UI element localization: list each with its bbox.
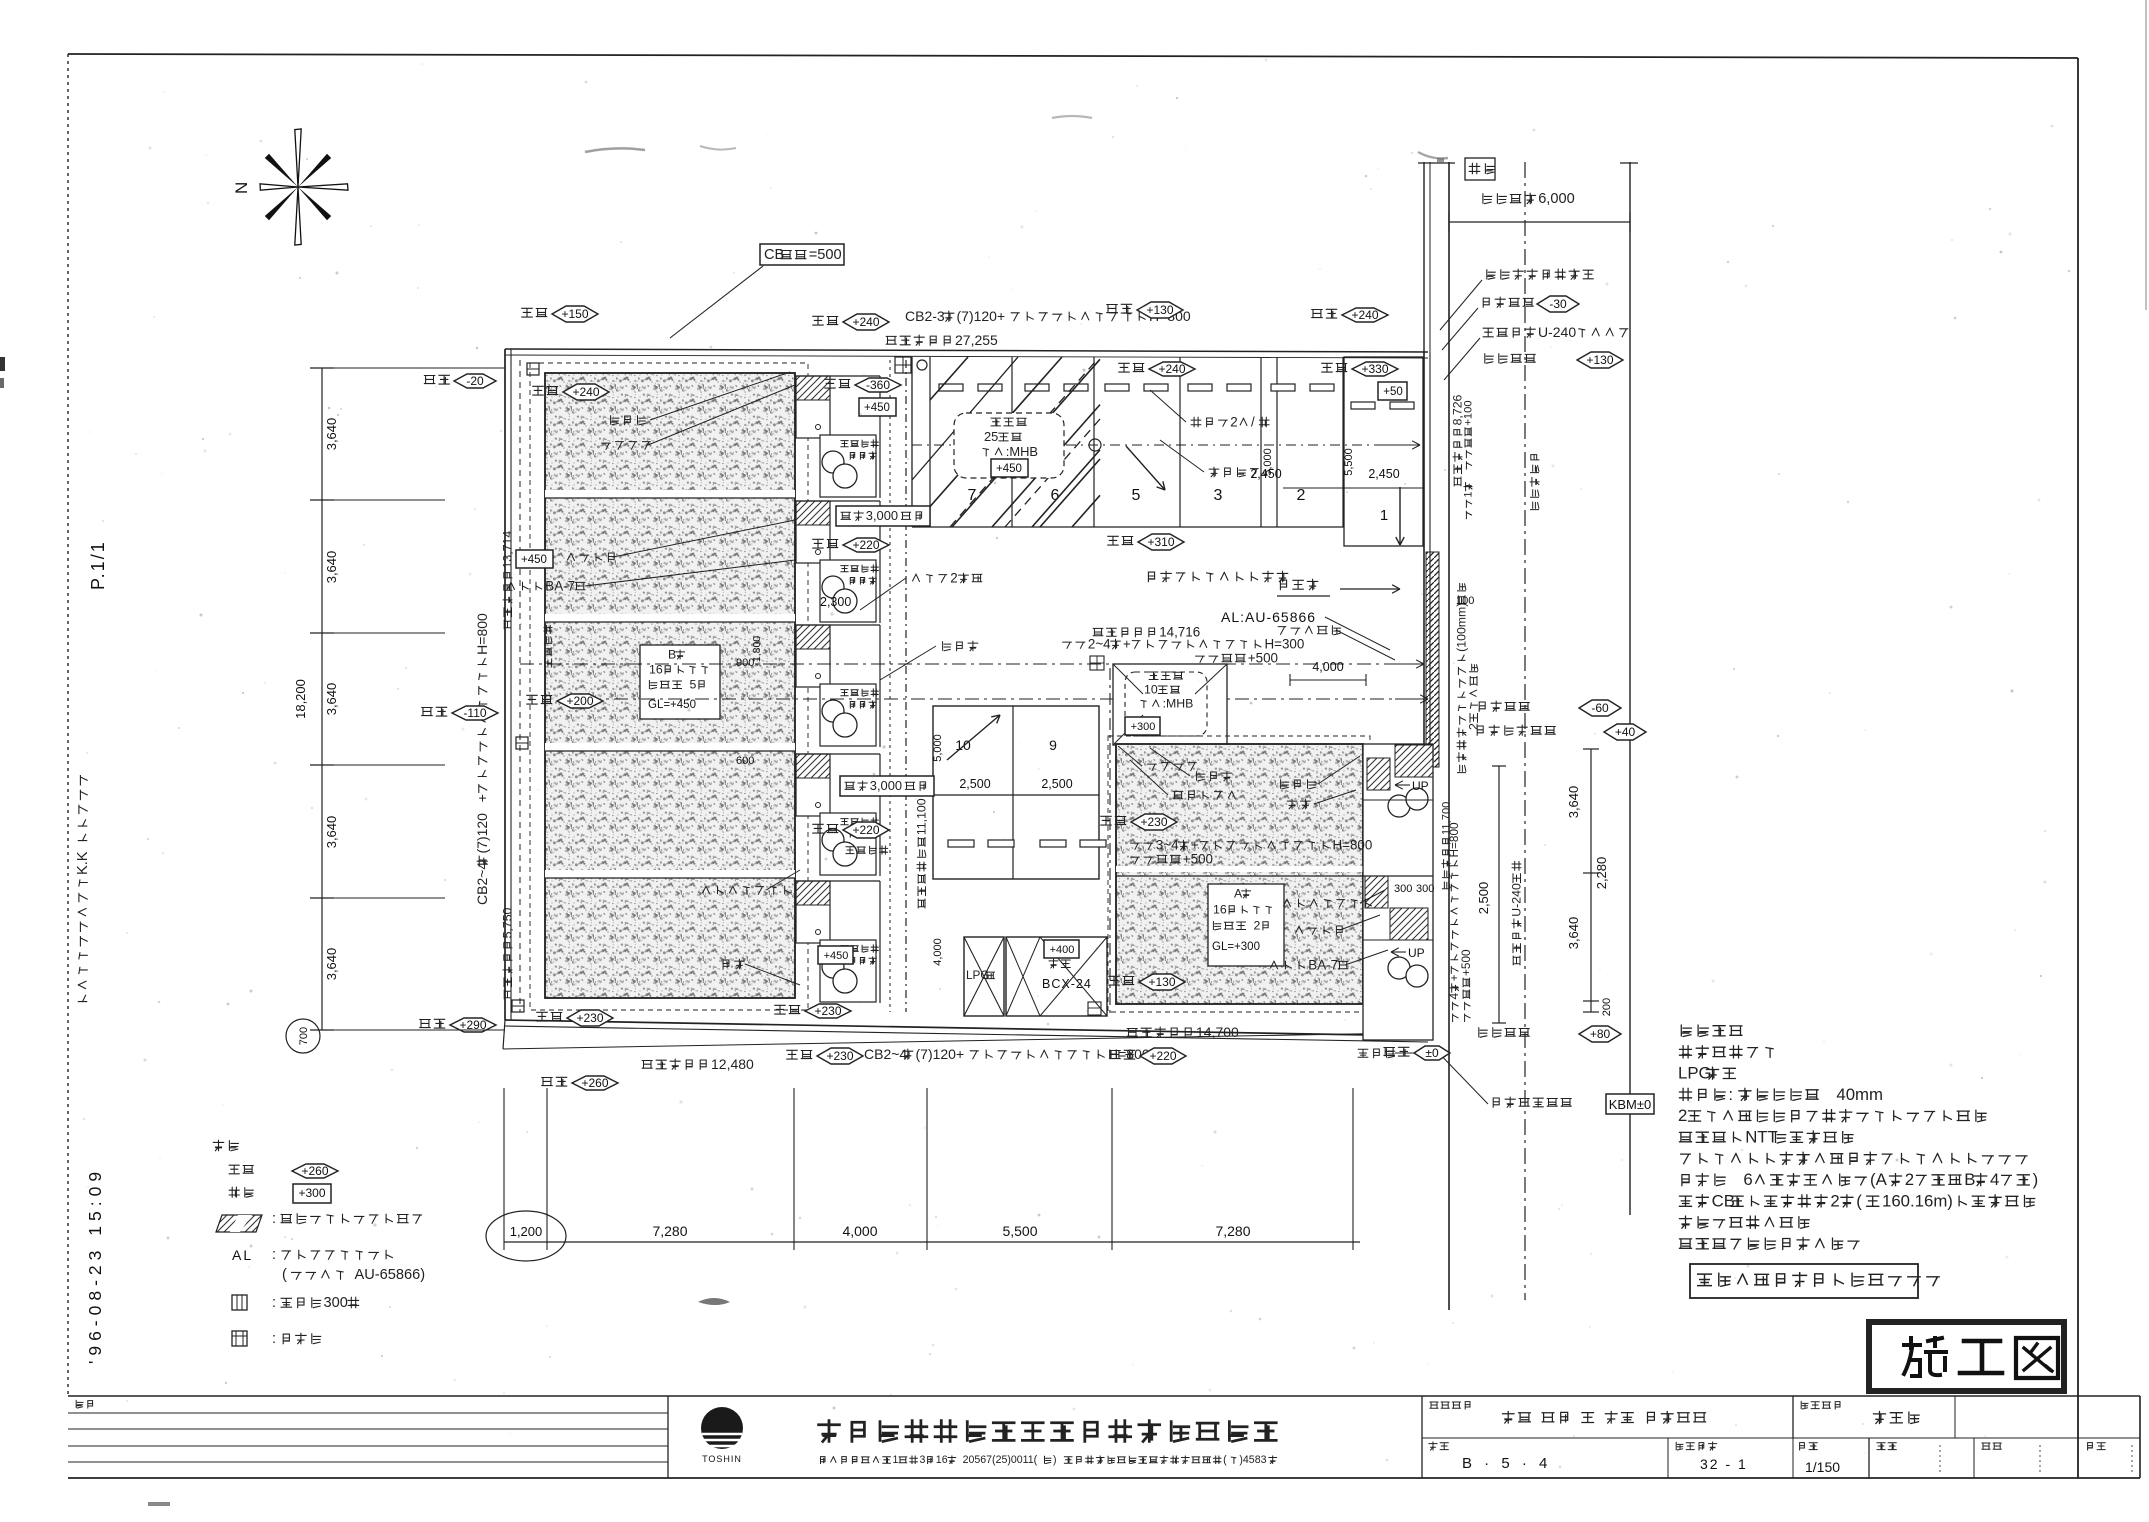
svg-text:+50: +50 — [1383, 386, 1403, 398]
svg-text:13,714: 13,714 — [501, 531, 515, 569]
svg-text::MHB: :MHB — [1163, 697, 1194, 711]
svg-text:5: 5 — [690, 678, 697, 692]
svg-text:+40: +40 — [1615, 725, 1636, 739]
svg-text:-110: -110 — [463, 706, 486, 720]
svg-text:3~4: 3~4 — [1156, 837, 1179, 852]
svg-text:GL=+300: GL=+300 — [1212, 941, 1260, 953]
svg-text:2,450: 2,450 — [1368, 467, 1399, 481]
svg-text:16: 16 — [1213, 903, 1227, 917]
svg-text:300: 300 — [324, 1295, 348, 1311]
svg-text:11,100: 11,100 — [915, 798, 929, 835]
svg-text:H=800: H=800 — [1447, 822, 1461, 858]
svg-text:5,000: 5,000 — [1262, 448, 1274, 476]
svg-text::MHB: :MHB — [1006, 444, 1038, 459]
svg-text:+230: +230 — [814, 1004, 841, 1018]
svg-text:KBM±0: KBM±0 — [1609, 1097, 1652, 1112]
svg-text:U-240: U-240 — [1510, 883, 1524, 917]
svg-text:+500: +500 — [1248, 650, 1278, 665]
svg-text:900: 900 — [736, 657, 754, 669]
svg-text:H=800: H=800 — [474, 613, 490, 655]
svg-text:BA-7: BA-7 — [1308, 957, 1338, 972]
svg-text:600: 600 — [736, 755, 754, 767]
svg-text:4: 4 — [1990, 1170, 1999, 1189]
svg-text:27,255: 27,255 — [955, 332, 998, 348]
svg-text:(: ( — [1856, 1191, 1862, 1210]
svg-text:5,500: 5,500 — [1002, 1223, 1037, 1239]
svg-text:200: 200 — [1601, 998, 1613, 1016]
svg-text:2,500: 2,500 — [959, 777, 990, 791]
svg-text::: : — [1728, 1085, 1733, 1104]
svg-text:4,000: 4,000 — [932, 938, 944, 966]
svg-text:P.1/1: P.1/1 — [88, 540, 108, 590]
svg-text:3,640: 3,640 — [324, 683, 339, 716]
svg-text:3,640: 3,640 — [1566, 917, 1581, 950]
svg-text:NTT: NTT — [1745, 1127, 1778, 1146]
svg-text:1: 1 — [893, 1454, 899, 1466]
svg-text:6,000: 6,000 — [1538, 191, 1575, 207]
svg-text:+400: +400 — [1050, 944, 1075, 956]
svg-text:+230: +230 — [826, 1049, 853, 1063]
svg-text:3: 3 — [1214, 487, 1223, 504]
svg-text:1: 1 — [1463, 491, 1475, 497]
svg-text:B: B — [1964, 1170, 1975, 1189]
svg-text:3,000: 3,000 — [866, 508, 898, 523]
svg-text:14,700: 14,700 — [1196, 1024, 1239, 1040]
svg-text:+220: +220 — [852, 538, 879, 552]
svg-text:2~4: 2~4 — [1088, 636, 1111, 651]
svg-text:UP: UP — [1412, 779, 1429, 793]
svg-text:+500: +500 — [1459, 949, 1473, 976]
svg-text:(7)120: (7)120 — [474, 813, 490, 854]
svg-text:B · 5 · 4: B · 5 · 4 — [1462, 1455, 1551, 1472]
svg-text:H=300: H=300 — [1265, 636, 1305, 651]
svg-text:2,500: 2,500 — [1476, 882, 1491, 915]
svg-text:2: 2 — [1230, 414, 1237, 429]
svg-text:2: 2 — [1254, 919, 1261, 933]
svg-text:2,280: 2,280 — [1594, 857, 1609, 890]
svg-text:16: 16 — [936, 1454, 948, 1466]
svg-text:7,280: 7,280 — [652, 1223, 687, 1239]
svg-text:16: 16 — [649, 663, 663, 677]
svg-text:2: 2 — [1830, 1191, 1839, 1210]
svg-text:A: A — [1234, 887, 1243, 901]
svg-text:BCX-24: BCX-24 — [1042, 977, 1092, 991]
svg-text:9: 9 — [1049, 737, 1057, 753]
svg-text:4,000: 4,000 — [842, 1223, 877, 1239]
svg-text:6: 6 — [1743, 1170, 1752, 1189]
svg-text:18,200: 18,200 — [293, 679, 308, 719]
svg-text:+450: +450 — [996, 463, 1022, 475]
svg-text:+220: +220 — [1149, 1049, 1176, 1063]
svg-text:+260: +260 — [581, 1076, 608, 1090]
svg-text:+80: +80 — [1590, 1027, 1611, 1041]
svg-text:+450: +450 — [824, 950, 849, 962]
svg-text:+240: +240 — [852, 315, 879, 329]
svg-text:(: ( — [282, 1267, 287, 1283]
svg-text:+: + — [474, 794, 490, 802]
svg-text:5,750: 5,750 — [501, 907, 515, 938]
svg-text:CB2-3: CB2-3 — [905, 308, 945, 324]
svg-text:2: 2 — [950, 570, 957, 585]
svg-text:K.K: K.K — [75, 851, 91, 875]
svg-text:+450: +450 — [521, 554, 547, 566]
svg-text:+330: +330 — [1361, 362, 1388, 376]
svg-text:1: 1 — [1380, 507, 1388, 524]
svg-text:(100mm): (100mm) — [1455, 603, 1469, 652]
svg-text:+150: +150 — [561, 307, 588, 321]
svg-text:(7)120+: (7)120+ — [916, 1046, 965, 1062]
svg-text:300: 300 — [1394, 883, 1412, 895]
svg-text:=500: =500 — [809, 247, 842, 263]
svg-text:5,000: 5,000 — [932, 734, 944, 762]
svg-text::: : — [272, 1331, 276, 1347]
svg-text:2,300: 2,300 — [820, 595, 851, 609]
svg-text:+200: +200 — [566, 694, 593, 708]
svg-text:3,640: 3,640 — [324, 551, 339, 584]
svg-text:+240: +240 — [1158, 362, 1185, 376]
svg-text:LPG: LPG — [1678, 1064, 1712, 1083]
svg-text:TOSHIN: TOSHIN — [702, 1454, 742, 1464]
svg-text:): ) — [1053, 1454, 1057, 1466]
svg-text:+310: +310 — [1147, 535, 1174, 549]
svg-text:+130: +130 — [1148, 975, 1175, 989]
svg-text:25: 25 — [984, 429, 998, 444]
svg-text:160.16m): 160.16m) — [1882, 1191, 1953, 1210]
svg-text:/: / — [1251, 414, 1255, 429]
svg-text:CB: CB — [1712, 1191, 1735, 1210]
svg-text:2: 2 — [1905, 1170, 1914, 1189]
svg-text:2: 2 — [1297, 487, 1306, 504]
svg-text:+230: +230 — [576, 1011, 603, 1025]
svg-text:+130: +130 — [1146, 303, 1173, 317]
svg-text:1/150: 1/150 — [1805, 1459, 1840, 1475]
svg-text:(A: (A — [1870, 1170, 1888, 1189]
svg-text:-30: -30 — [1549, 297, 1567, 311]
svg-text:)4583: )4583 — [1239, 1454, 1266, 1466]
svg-text:+230: +230 — [1140, 815, 1167, 829]
svg-text:1,200: 1,200 — [510, 1224, 543, 1239]
svg-text:): ) — [2033, 1170, 2039, 1189]
svg-text:12,480: 12,480 — [711, 1056, 754, 1072]
svg-text:4,000: 4,000 — [1312, 660, 1343, 674]
svg-text:100: 100 — [1456, 595, 1474, 607]
svg-text:5: 5 — [1132, 487, 1141, 504]
svg-text:'96-08-23 15:09: '96-08-23 15:09 — [85, 1167, 105, 1364]
svg-text:+300: +300 — [298, 1186, 325, 1200]
svg-text:+260: +260 — [301, 1164, 328, 1178]
svg-text:+500: +500 — [1183, 851, 1213, 866]
svg-text:3,640: 3,640 — [324, 418, 339, 451]
svg-text:10: 10 — [1144, 683, 1158, 697]
svg-text:U-240: U-240 — [1538, 324, 1576, 340]
svg-text:B: B — [668, 648, 676, 662]
svg-text:(: ( — [1223, 1454, 1227, 1466]
svg-text:+220: +220 — [852, 823, 879, 837]
svg-text:3: 3 — [920, 1454, 926, 1466]
svg-text:3,000: 3,000 — [870, 778, 902, 793]
svg-text:+: + — [1123, 636, 1131, 651]
svg-text:+240: +240 — [572, 385, 599, 399]
svg-text:7,280: 7,280 — [1215, 1223, 1250, 1239]
svg-text:-20: -20 — [466, 374, 484, 388]
svg-text:+: + — [1191, 837, 1199, 852]
svg-text:32 - 1: 32 - 1 — [1700, 1456, 1748, 1472]
svg-text:AL: AL — [232, 1247, 253, 1263]
svg-text:40mm: 40mm — [1836, 1085, 1883, 1104]
svg-text:LPG: LPG — [966, 968, 990, 982]
svg-text:+130: +130 — [1586, 353, 1613, 367]
svg-text:+240: +240 — [1351, 308, 1378, 322]
svg-text:2: 2 — [1678, 1106, 1687, 1125]
svg-text:2,500: 2,500 — [1041, 777, 1072, 791]
svg-text:700: 700 — [298, 1027, 310, 1045]
svg-text:3,640: 3,640 — [324, 816, 339, 849]
svg-text:+100: +100 — [1463, 400, 1475, 425]
svg-text:BA-7: BA-7 — [545, 578, 575, 593]
svg-text:H=800: H=800 — [1333, 837, 1373, 852]
svg-text:20567(25)0011(: 20567(25)0011( — [963, 1454, 1038, 1466]
svg-text:+450: +450 — [864, 402, 890, 414]
svg-text:AL:AU-65866: AL:AU-65866 — [1221, 609, 1316, 625]
svg-text:N: N — [232, 182, 251, 194]
svg-text::: : — [272, 1211, 276, 1227]
svg-text:-60: -60 — [1591, 701, 1609, 715]
svg-text:(7)120+: (7)120+ — [957, 308, 1006, 324]
svg-text:14,716: 14,716 — [1159, 624, 1200, 639]
svg-text:CB: CB — [764, 247, 784, 263]
svg-text:300: 300 — [1416, 883, 1434, 895]
svg-text:5,500: 5,500 — [1343, 448, 1355, 476]
svg-text:AU-65866): AU-65866) — [355, 1267, 426, 1283]
svg-text:+300: +300 — [1131, 721, 1156, 733]
svg-text:3,640: 3,640 — [324, 948, 339, 981]
svg-text::: : — [272, 1295, 276, 1311]
svg-text:CB2~4: CB2~4 — [474, 862, 490, 905]
svg-text::: : — [272, 1247, 276, 1263]
svg-text:CB2~4: CB2~4 — [864, 1046, 907, 1062]
svg-text:-360: -360 — [866, 378, 890, 392]
svg-text:UP: UP — [1408, 946, 1425, 960]
svg-text:3,640: 3,640 — [1566, 786, 1581, 819]
svg-text:±0: ±0 — [1425, 1046, 1439, 1060]
svg-text:4: 4 — [1447, 993, 1461, 1000]
